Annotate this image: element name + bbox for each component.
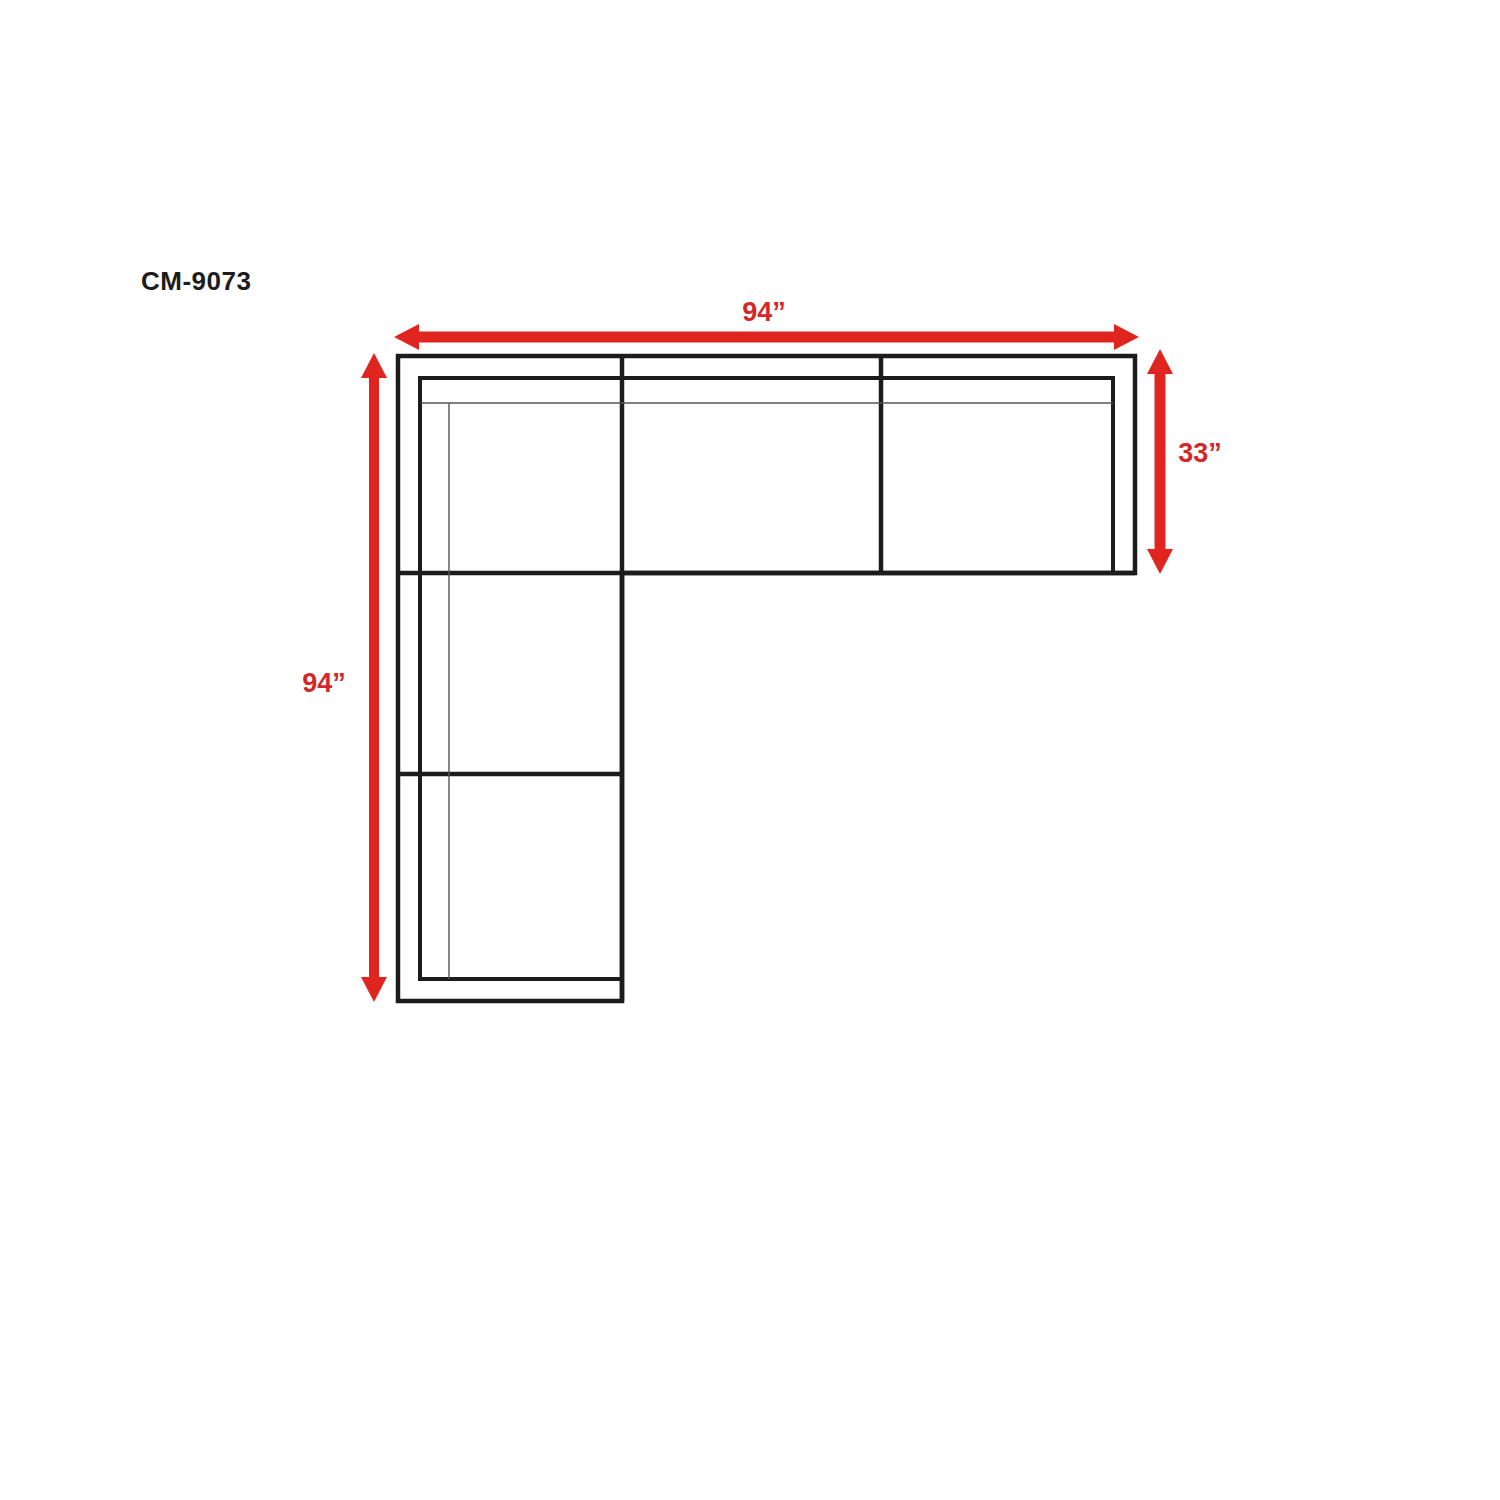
sofa-inner-arm-border (420, 378, 1113, 979)
arrowhead-right-icon (1114, 324, 1139, 350)
top-width-dimension-label: 94” (742, 297, 786, 328)
sofa-cushion-lines (421, 403, 1113, 979)
right-depth-dimension-label: 33” (1178, 438, 1222, 469)
sectional-dimension-diagram: CM-9073 (0, 0, 1500, 1500)
dimension-arrow-right-depth (1147, 349, 1173, 574)
arrowhead-up-icon (361, 353, 387, 378)
sectional-sofa-top-view-drawing (0, 0, 1500, 1500)
arrowhead-left-icon (394, 324, 419, 350)
arrowhead-down-icon (1147, 549, 1173, 574)
dimension-arrow-left-length (361, 353, 387, 1002)
sofa-outer-outline (396, 356, 1135, 1001)
left-length-dimension-label: 94” (302, 668, 346, 699)
arrowhead-up-icon (1147, 349, 1173, 374)
arrowhead-down-icon (361, 977, 387, 1002)
inner-arm-line (420, 378, 1113, 979)
sofa-body-outline (398, 356, 1135, 1001)
